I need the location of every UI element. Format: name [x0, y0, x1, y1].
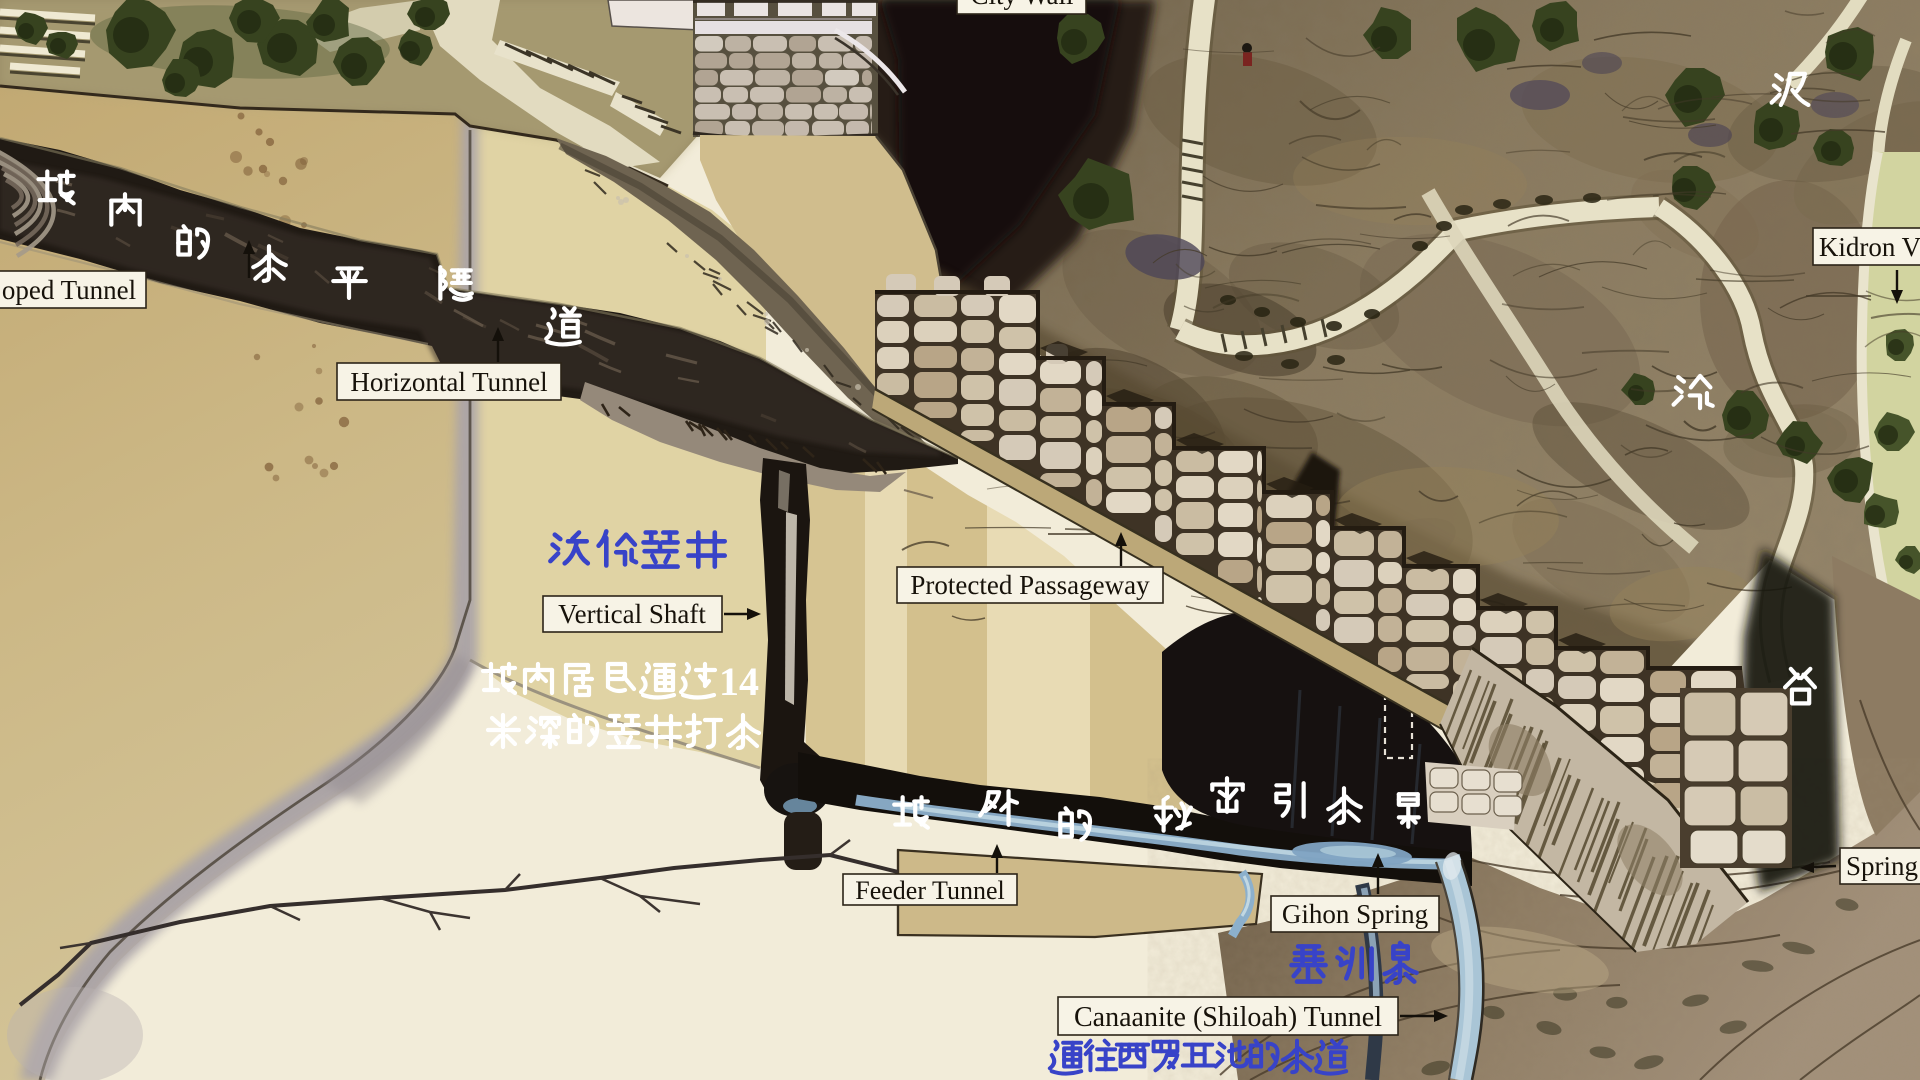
svg-text:Kidron V: Kidron V — [1819, 232, 1920, 262]
svg-text:14: 14 — [719, 659, 759, 704]
svg-text:Gihon Spring: Gihon Spring — [1282, 899, 1428, 929]
svg-text:Feeder Tunnel: Feeder Tunnel — [855, 876, 1005, 905]
svg-text:Spring: Spring — [1846, 851, 1918, 881]
svg-text:Canaanite (Shiloah) Tunnel: Canaanite (Shiloah) Tunnel — [1074, 1002, 1382, 1033]
svg-text:Horizontal Tunnel: Horizontal Tunnel — [350, 367, 547, 397]
svg-text:Protected Passageway: Protected Passageway — [910, 570, 1150, 600]
svg-text:Vertical Shaft: Vertical Shaft — [558, 599, 706, 629]
svg-text:oped Tunnel: oped Tunnel — [2, 275, 136, 305]
svg-text:City Wall: City Wall — [970, 0, 1073, 10]
